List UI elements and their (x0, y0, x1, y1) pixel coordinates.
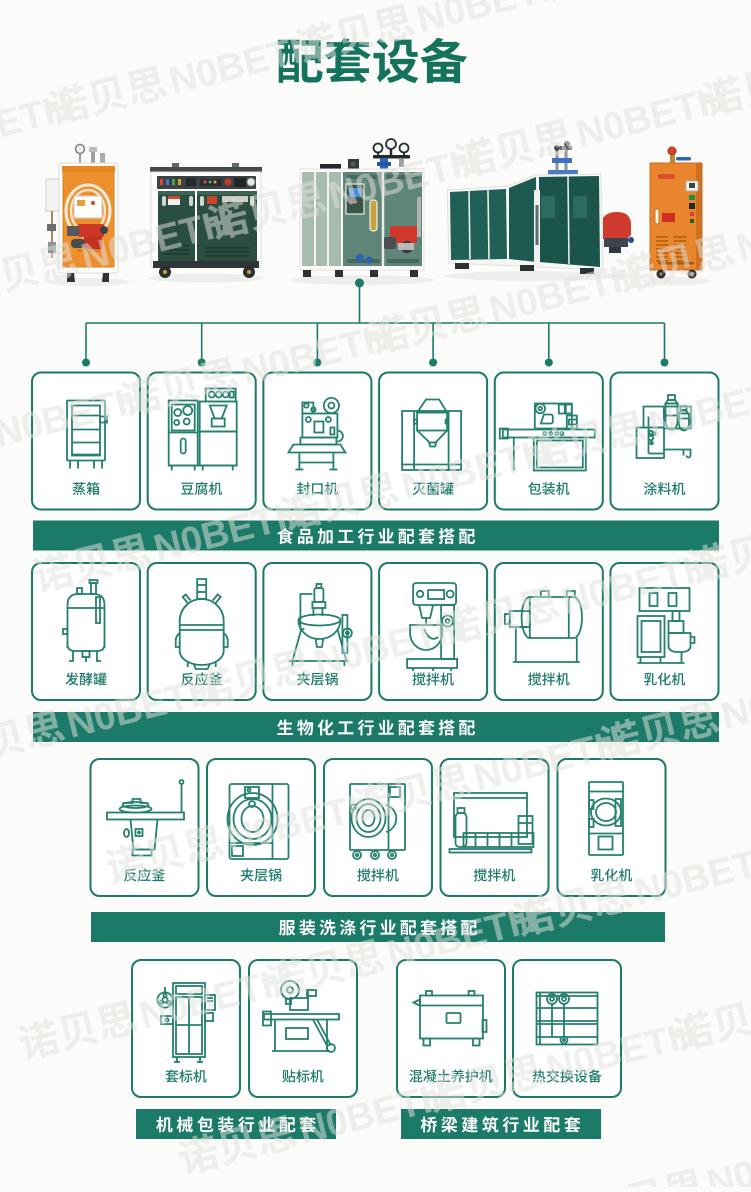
svg-text:N0BETH: N0BETH (717, 661, 751, 739)
svg-text:N0BETH: N0BETH (412, 0, 570, 41)
svg-text:N0BETH: N0BETH (165, 25, 323, 103)
svg-text:N0BETH: N0BETH (703, 1128, 751, 1187)
svg-text:N0BETH: N0BETH (732, 193, 751, 271)
svg-text:N0BETH: N0BETH (0, 87, 75, 165)
svg-text:N0BETH: N0BETH (572, 78, 730, 156)
